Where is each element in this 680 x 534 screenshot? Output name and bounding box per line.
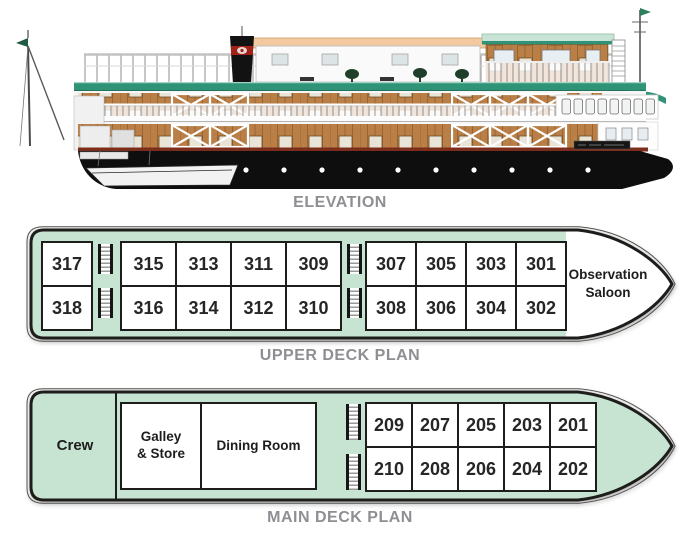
- cabin-204: 204: [503, 446, 551, 492]
- cabin-302: 302: [515, 285, 567, 331]
- cabin-208: 208: [411, 446, 459, 492]
- stairs-icon: [98, 288, 113, 318]
- cabin-209: 209: [365, 402, 413, 448]
- cabin-308: 308: [365, 285, 417, 331]
- cabin-304: 304: [465, 285, 517, 331]
- cabin-202: 202: [549, 446, 597, 492]
- cabin-306: 306: [415, 285, 467, 331]
- deck-plan-page: ELEVATION Observation Saloon UPPER DECK …: [0, 0, 680, 534]
- cabin-315: 315: [120, 241, 177, 287]
- cabin-318: 318: [41, 285, 93, 331]
- upper-deck-label: UPPER DECK PLAN: [0, 347, 680, 365]
- stairs-icon: [346, 404, 361, 440]
- cabin-314: 314: [175, 285, 232, 331]
- cabin-205: 205: [457, 402, 505, 448]
- crew-divider-line: [115, 391, 117, 501]
- bow-mast-icon: [632, 8, 651, 82]
- stairs-icon: [347, 288, 362, 318]
- sun-deckhouse: [250, 38, 486, 82]
- elevation-label: ELEVATION: [0, 194, 680, 212]
- funnel: [230, 26, 254, 84]
- wheelhouse: [482, 34, 625, 83]
- upper-deck-band: [74, 91, 658, 119]
- cabin-201: 201: [549, 402, 597, 448]
- cabin-303: 303: [465, 241, 517, 287]
- dining-room: Dining Room: [200, 402, 317, 490]
- cabin-305: 305: [415, 241, 467, 287]
- cabin-301: 301: [515, 241, 567, 287]
- cabin-311: 311: [230, 241, 287, 287]
- cabin-210: 210: [365, 446, 413, 492]
- observation-saloon-label: Observation Saloon: [558, 260, 658, 308]
- cabin-203: 203: [503, 402, 551, 448]
- galley-store-room: Galley & Store: [120, 402, 202, 490]
- crew-area-label: Crew: [35, 432, 115, 460]
- cabin-313: 313: [175, 241, 232, 287]
- cabin-309: 309: [285, 241, 342, 287]
- cabin-310: 310: [285, 285, 342, 331]
- cabin-312: 312: [230, 285, 287, 331]
- cabin-206: 206: [457, 446, 505, 492]
- cabin-317: 317: [41, 241, 93, 287]
- stairs-icon: [347, 244, 362, 274]
- stern-crane: [16, 30, 64, 146]
- ship-elevation-illustration: [0, 0, 680, 212]
- stairs-icon: [346, 454, 361, 490]
- main-deck-label: MAIN DECK PLAN: [0, 509, 680, 527]
- cabin-316: 316: [120, 285, 177, 331]
- cabin-207: 207: [411, 402, 459, 448]
- cabin-307: 307: [365, 241, 417, 287]
- stairs-icon: [98, 244, 113, 274]
